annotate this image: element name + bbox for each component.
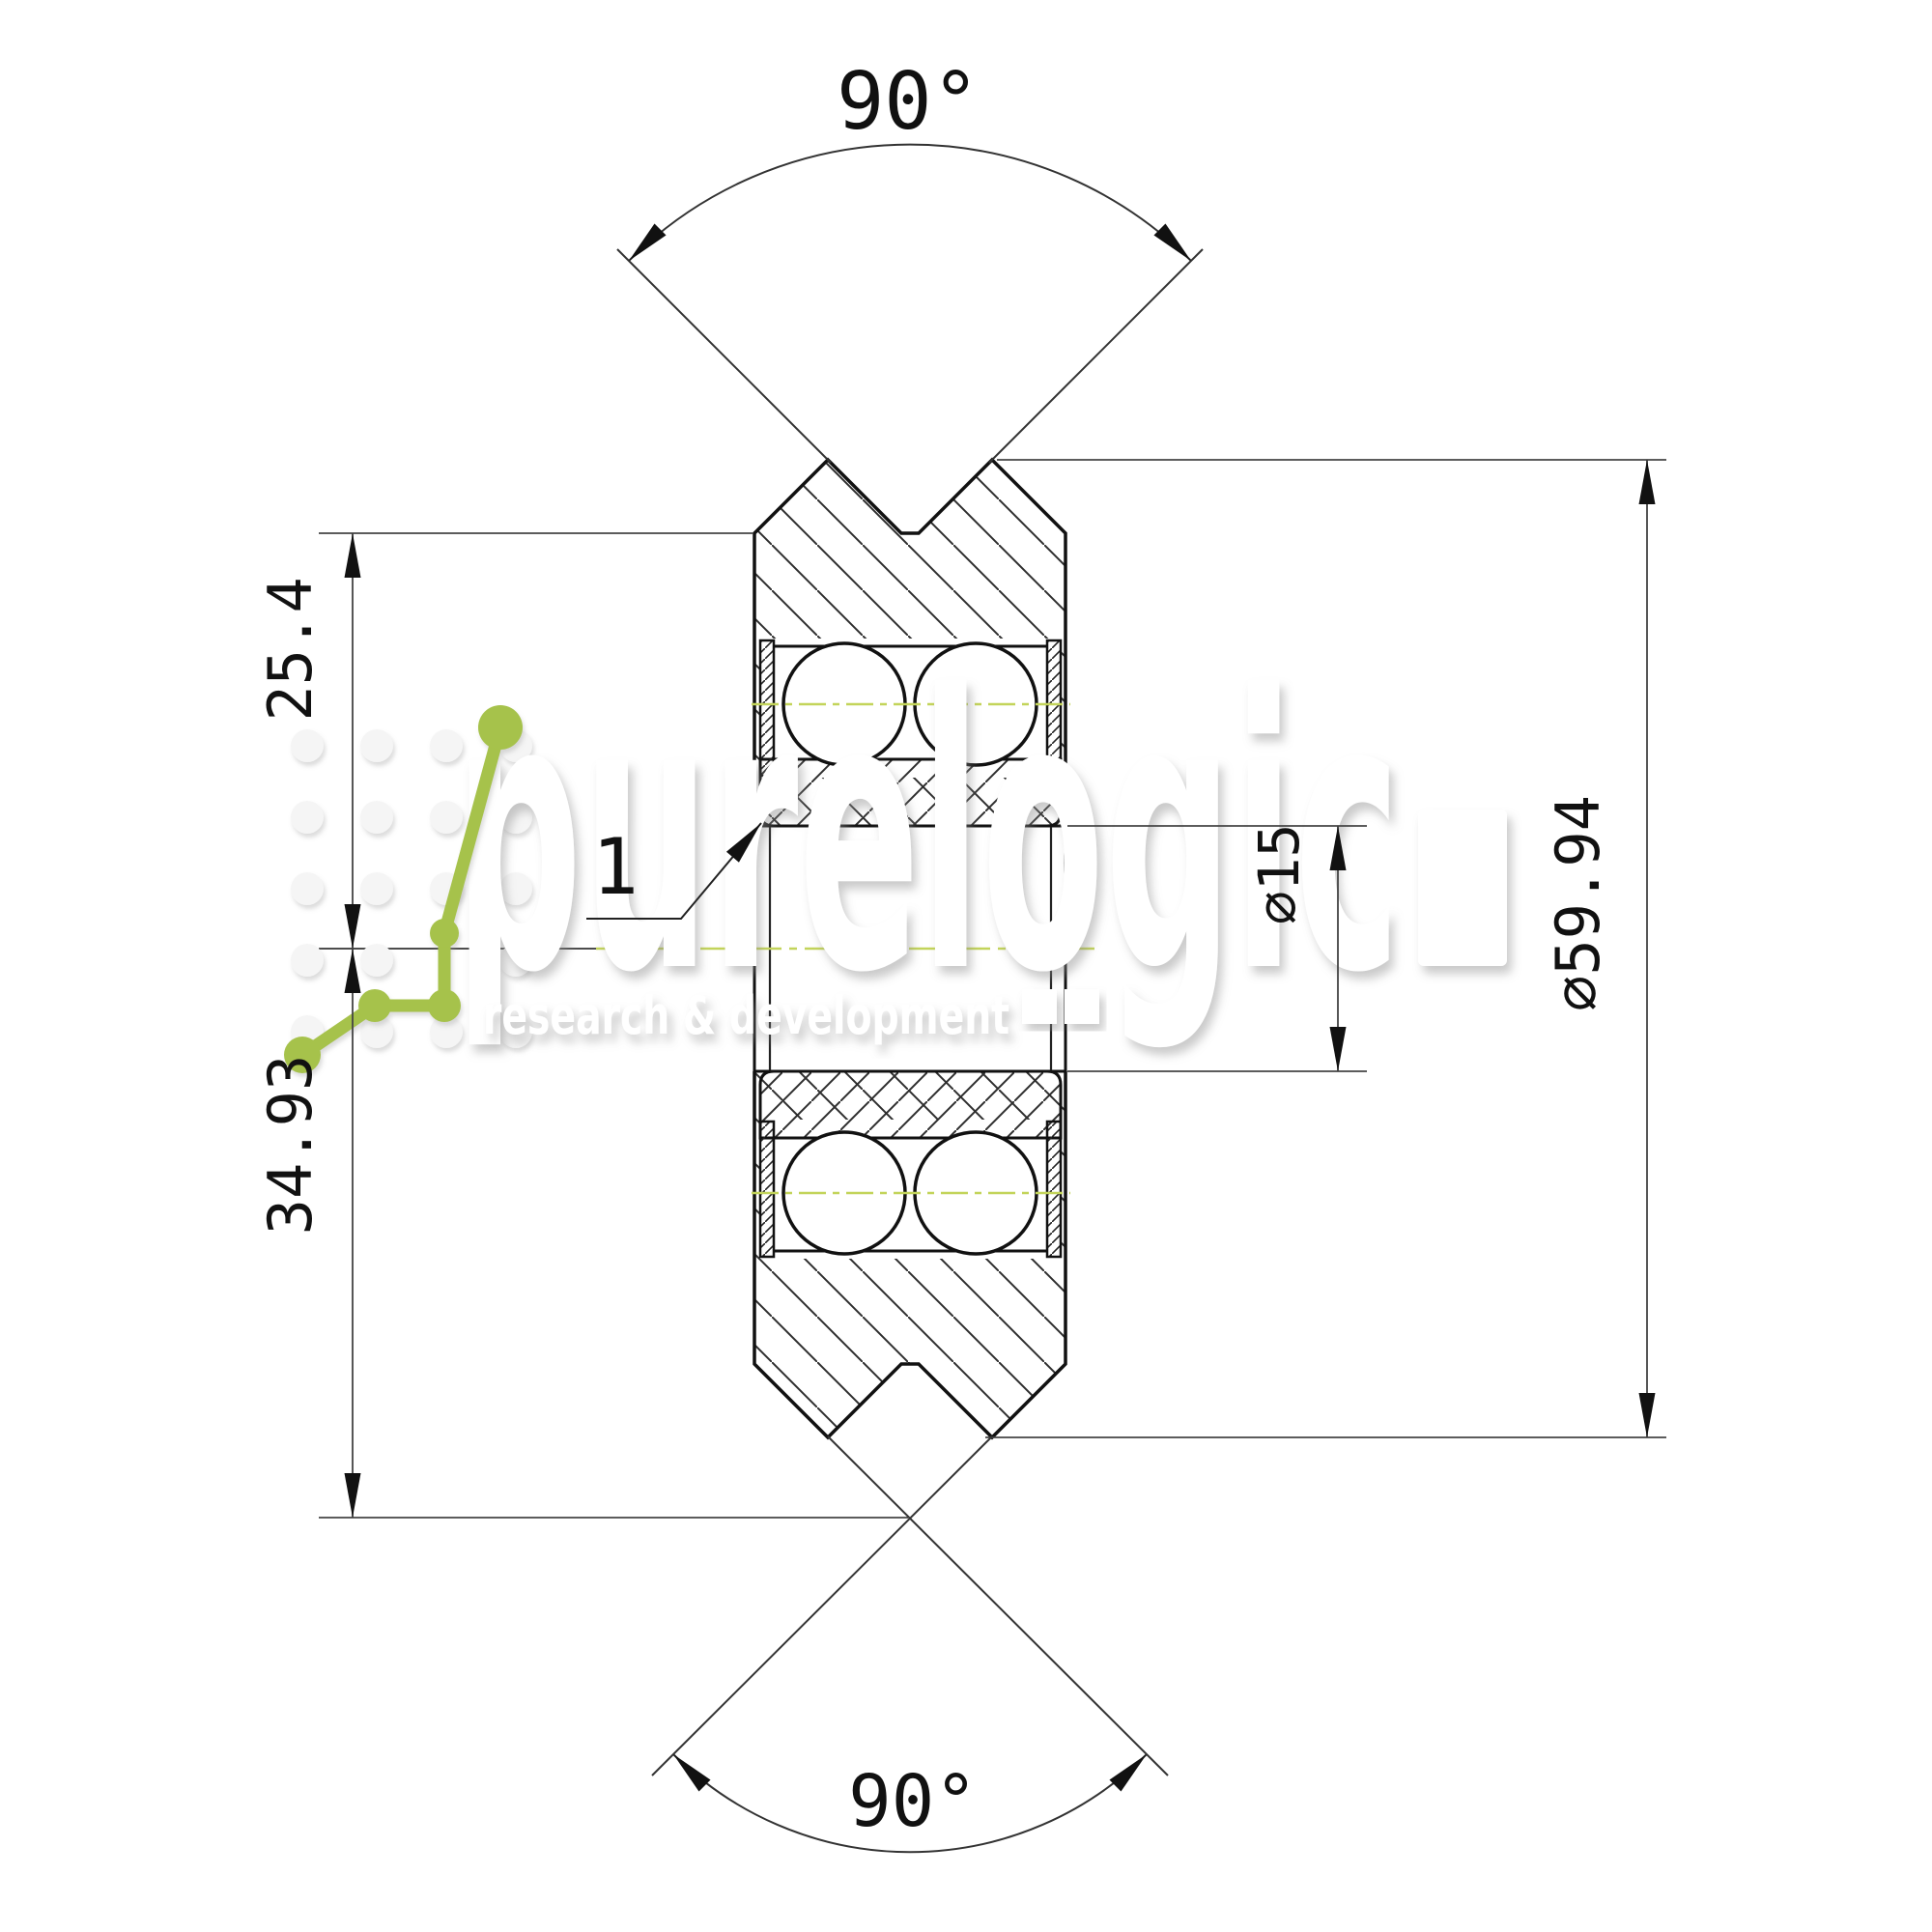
- bearing-bottom: [752, 1071, 1070, 1259]
- v-groove-wheel-drawing: purelogic research & development: [0, 0, 1932, 1932]
- angle-label-bottom: 90°: [848, 1760, 978, 1843]
- dim-text-bore: ⌀15: [1246, 824, 1312, 925]
- tagline-block: [1065, 989, 1099, 1024]
- logo-block: [1418, 810, 1507, 966]
- technical-drawing-page: purelogic research & development: [0, 0, 1932, 1932]
- angle-label-top: 90°: [837, 56, 980, 148]
- angle-arc-top: [629, 145, 1191, 261]
- construction-line: [989, 249, 1203, 463]
- watermark-tagline: research & development: [483, 985, 1009, 1046]
- dim-text-25-4: 25.4: [255, 577, 326, 721]
- dim-text-outer: ⌀59.94: [1543, 795, 1613, 1011]
- inner-ring-bottom: [760, 1071, 1061, 1138]
- seal-left: [760, 1122, 774, 1257]
- watermark: purelogic research & development: [284, 616, 1507, 1073]
- construction-line: [617, 249, 831, 463]
- construction-line: [652, 1436, 992, 1776]
- part-label: 1: [592, 822, 639, 912]
- tagline-block: [1022, 989, 1057, 1024]
- seal-right: [1047, 1122, 1061, 1257]
- dim-text-34-93: 34.93: [255, 1055, 326, 1236]
- construction-line: [828, 1436, 1168, 1776]
